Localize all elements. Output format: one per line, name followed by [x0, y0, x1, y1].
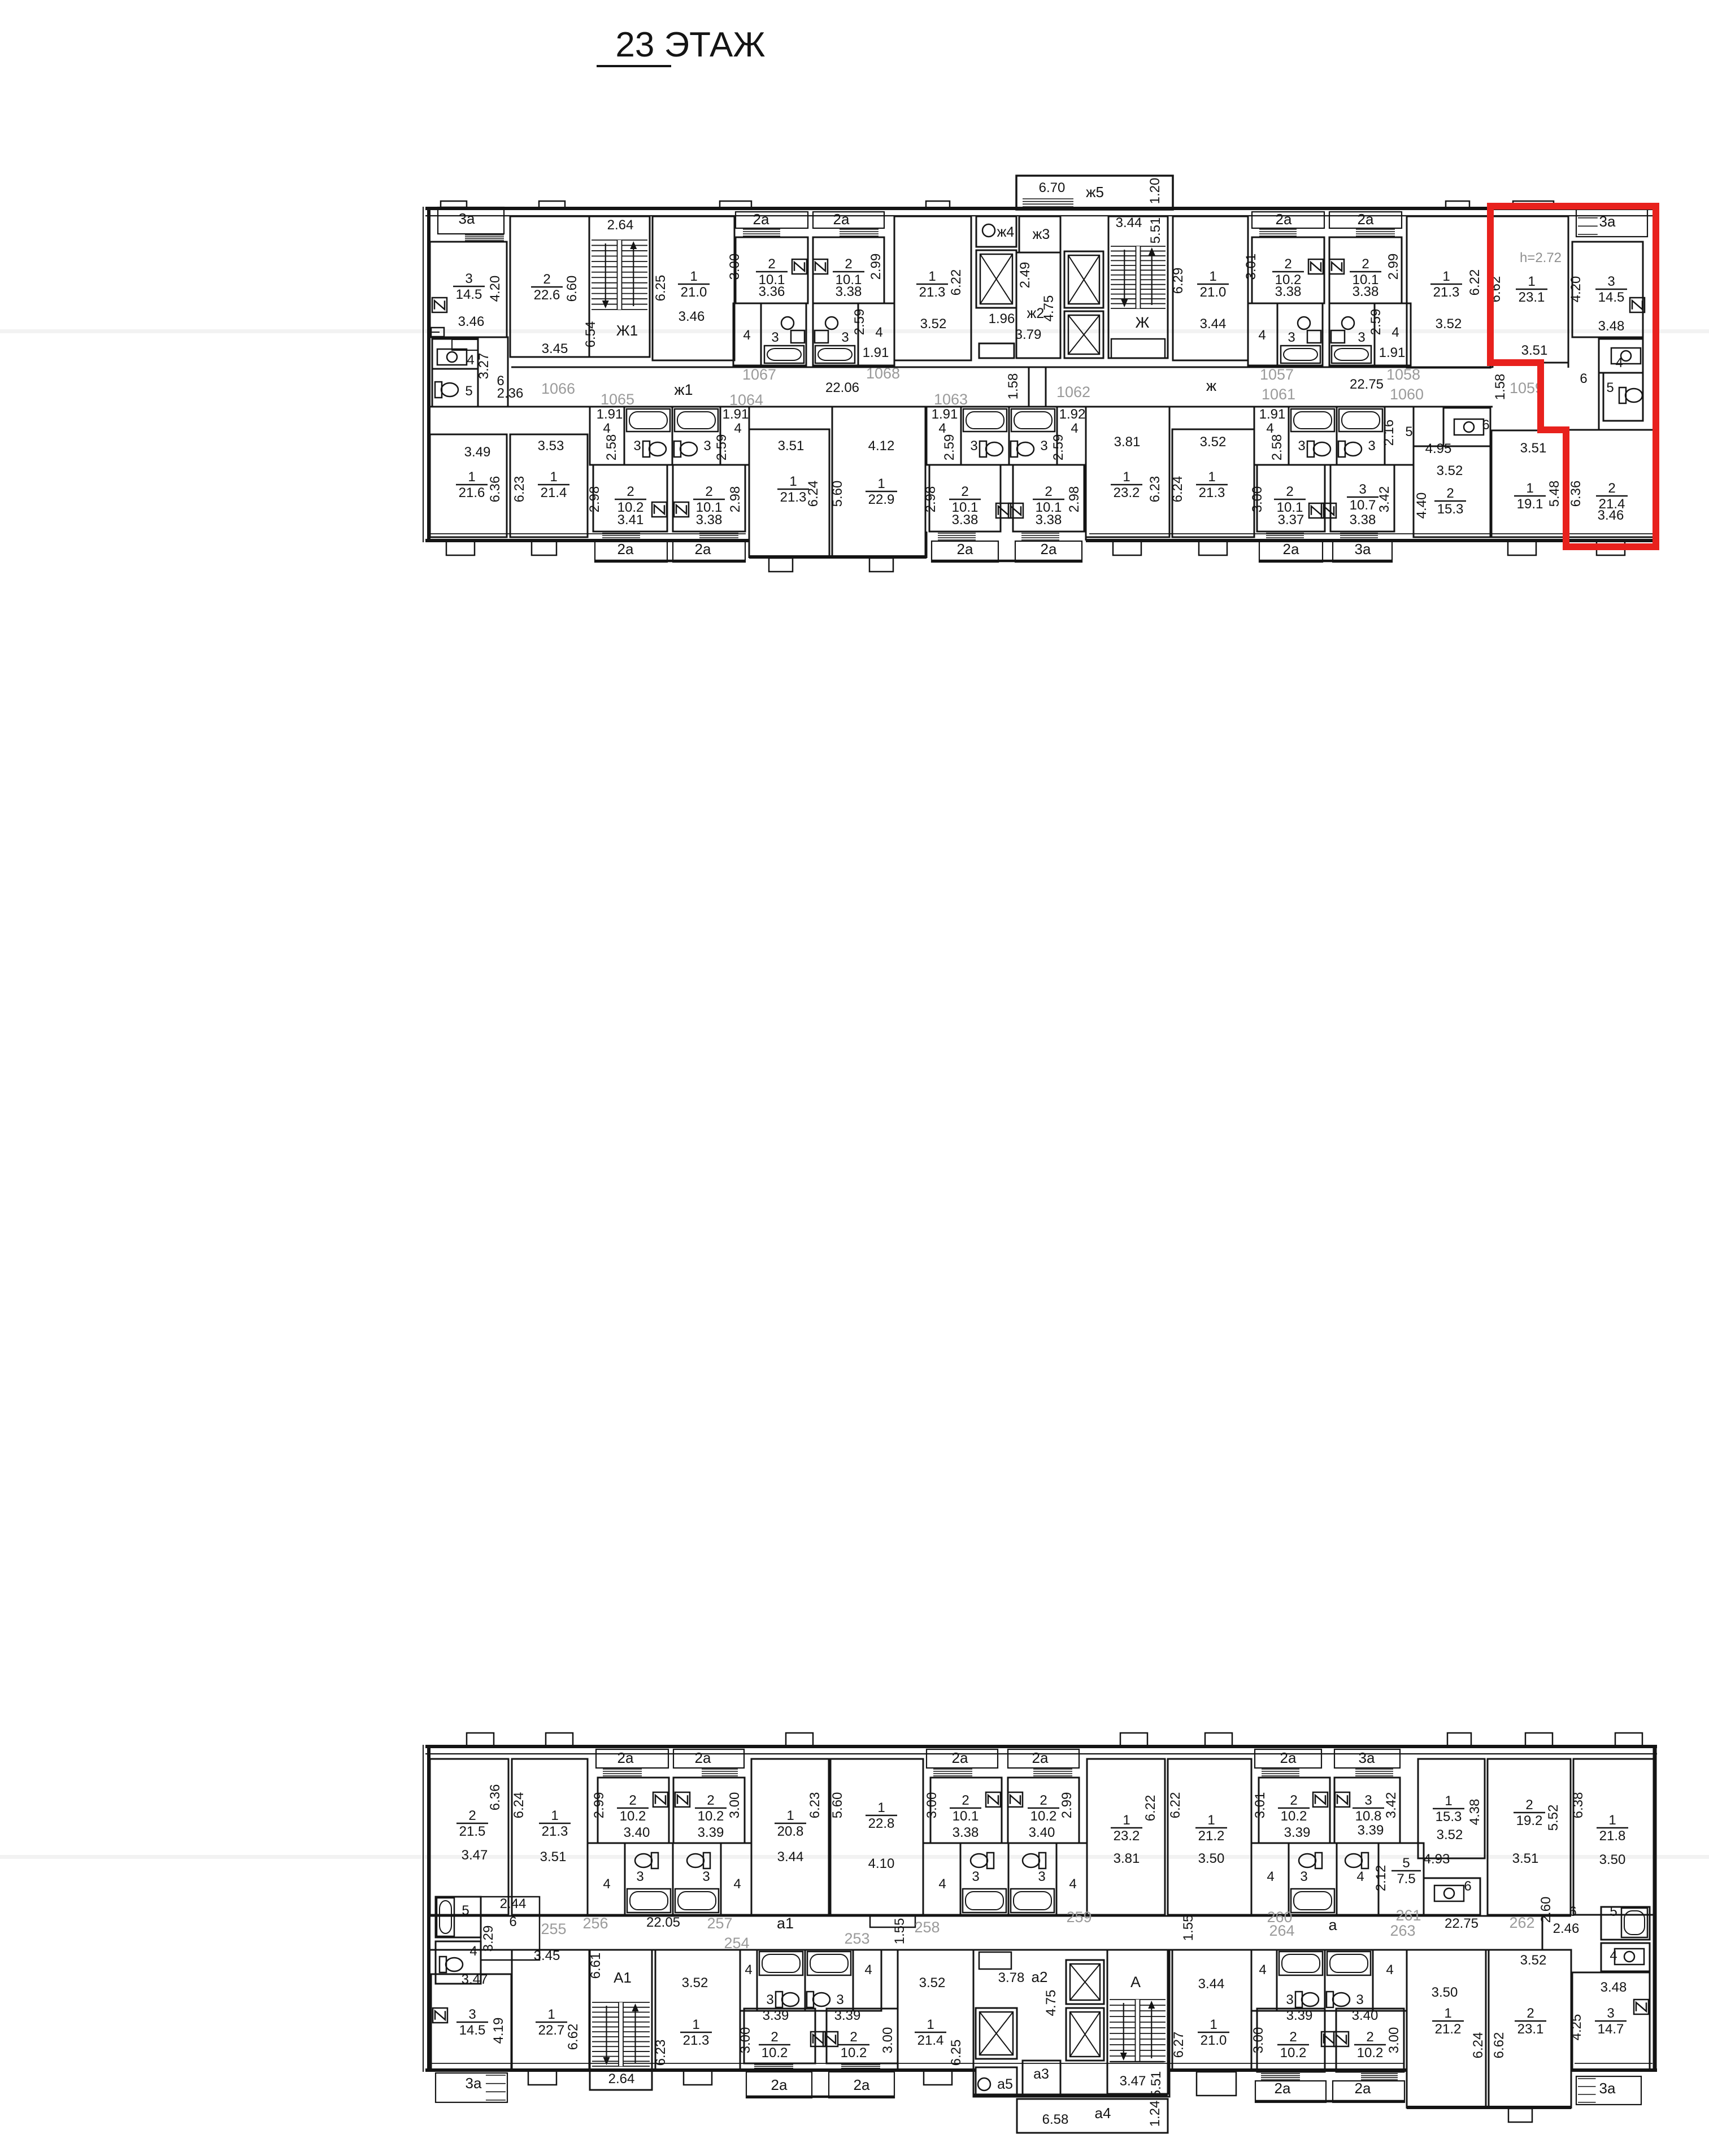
svg-text:10.2: 10.2: [1280, 2045, 1307, 2061]
svg-text:2а: 2а: [833, 211, 850, 228]
svg-text:2.59: 2.59: [1051, 434, 1066, 461]
svg-text:ж: ж: [1206, 377, 1216, 394]
svg-text:23 ЭТАЖ: 23 ЭТАЖ: [615, 25, 765, 64]
svg-text:3.00: 3.00: [1250, 486, 1265, 513]
svg-text:6.24: 6.24: [511, 1792, 527, 1819]
svg-text:6.70: 6.70: [1039, 180, 1066, 195]
svg-text:3а: 3а: [1355, 541, 1371, 557]
svg-text:3.38: 3.38: [1275, 284, 1302, 299]
svg-text:3.00: 3.00: [1251, 2027, 1266, 2054]
svg-text:1: 1: [1526, 481, 1533, 496]
svg-text:23.1: 23.1: [1519, 290, 1545, 305]
svg-text:1.91: 1.91: [1259, 407, 1286, 422]
svg-text:3.52: 3.52: [1437, 1827, 1463, 1843]
svg-text:19.1: 19.1: [1517, 496, 1543, 512]
svg-text:4: 4: [1266, 421, 1273, 436]
svg-text:2.99: 2.99: [868, 254, 884, 280]
svg-text:5.51: 5.51: [1148, 217, 1163, 244]
svg-text:1: 1: [877, 1800, 885, 1815]
svg-text:5: 5: [1405, 424, 1412, 439]
svg-text:10.2: 10.2: [841, 2045, 867, 2061]
svg-text:5: 5: [1402, 1856, 1410, 1871]
svg-text:3.50: 3.50: [1432, 1985, 1458, 2000]
svg-text:1: 1: [692, 2017, 699, 2032]
svg-text:4: 4: [467, 352, 474, 368]
svg-text:15.3: 15.3: [1437, 502, 1464, 517]
svg-text:253: 253: [844, 1930, 869, 1947]
svg-text:3: 3: [1038, 1869, 1045, 1884]
svg-text:22.75: 22.75: [1445, 1916, 1478, 1931]
svg-text:1: 1: [1209, 269, 1216, 284]
svg-text:3.50: 3.50: [1599, 1852, 1626, 1867]
svg-text:10.2: 10.2: [1357, 2045, 1384, 2061]
svg-text:6: 6: [1569, 1904, 1576, 1919]
svg-text:21.3: 21.3: [683, 2033, 710, 2048]
svg-text:6.36: 6.36: [1568, 481, 1584, 507]
svg-text:3а: 3а: [1359, 1749, 1375, 1766]
svg-text:257: 257: [707, 1915, 732, 1932]
svg-text:2: 2: [1527, 2006, 1534, 2021]
svg-text:21.4: 21.4: [541, 485, 567, 500]
svg-text:6.27: 6.27: [1171, 2032, 1186, 2058]
svg-text:2: 2: [629, 1793, 636, 1808]
svg-text:3: 3: [1288, 330, 1295, 345]
svg-text:2.64: 2.64: [608, 2071, 635, 2087]
svg-text:2а: 2а: [617, 1749, 634, 1766]
svg-text:3.48: 3.48: [1601, 1980, 1627, 1995]
svg-text:4: 4: [743, 328, 750, 343]
svg-text:2а: 2а: [617, 541, 634, 557]
svg-text:3.00: 3.00: [880, 2027, 895, 2054]
svg-text:3а: 3а: [1599, 213, 1616, 230]
svg-text:264: 264: [1269, 1922, 1294, 1939]
svg-text:1: 1: [468, 469, 475, 485]
svg-text:3.50: 3.50: [1198, 1851, 1225, 1866]
svg-text:6.22: 6.22: [1467, 269, 1482, 296]
svg-text:3.51: 3.51: [778, 438, 805, 454]
svg-text:3.42: 3.42: [1384, 1792, 1399, 1819]
svg-text:2: 2: [1045, 484, 1052, 499]
svg-text:4: 4: [1386, 1962, 1393, 1978]
svg-text:1066: 1066: [541, 380, 575, 397]
svg-text:2: 2: [1040, 1793, 1047, 1808]
svg-text:2а: 2а: [1283, 541, 1299, 557]
svg-text:1.91: 1.91: [723, 407, 749, 422]
svg-text:2: 2: [961, 484, 968, 499]
svg-text:1: 1: [1445, 1793, 1452, 1809]
svg-text:21.3: 21.3: [919, 285, 946, 300]
svg-text:21.5: 21.5: [459, 1824, 486, 1839]
svg-text:1: 1: [551, 1808, 558, 1823]
svg-text:3.00: 3.00: [727, 254, 742, 280]
svg-text:3: 3: [1358, 330, 1365, 345]
svg-text:262: 262: [1509, 1914, 1534, 1931]
svg-text:3.81: 3.81: [1114, 1851, 1140, 1866]
svg-text:3.39: 3.39: [1284, 1825, 1311, 1840]
svg-text:2: 2: [768, 256, 775, 272]
svg-text:2.98: 2.98: [728, 486, 743, 513]
svg-text:22.8: 22.8: [868, 1816, 895, 1831]
svg-text:22.7: 22.7: [538, 2023, 565, 2038]
svg-text:1.58: 1.58: [1006, 373, 1021, 400]
svg-text:2: 2: [1366, 2029, 1373, 2045]
svg-text:6.62: 6.62: [1491, 2032, 1507, 2059]
svg-text:2а: 2а: [1276, 211, 1292, 228]
svg-text:2: 2: [1284, 256, 1291, 272]
svg-text:Ж1: Ж1: [616, 322, 638, 339]
svg-text:4: 4: [938, 1876, 946, 1892]
svg-text:1057: 1057: [1260, 366, 1294, 383]
svg-text:6: 6: [1464, 1879, 1471, 1894]
svg-text:4: 4: [864, 1962, 872, 1978]
svg-text:3.52: 3.52: [1437, 463, 1463, 478]
svg-text:1: 1: [927, 2017, 934, 2032]
svg-text:2.46: 2.46: [1553, 1921, 1580, 1936]
svg-text:4: 4: [603, 421, 610, 436]
svg-text:3.01: 3.01: [1253, 1792, 1268, 1819]
svg-text:2а: 2а: [695, 1749, 711, 1766]
svg-text:1: 1: [1442, 269, 1450, 284]
svg-text:4.25: 4.25: [1569, 2014, 1584, 2041]
svg-text:4: 4: [938, 421, 946, 436]
svg-text:3.46: 3.46: [1598, 508, 1624, 523]
svg-text:а: а: [1328, 1917, 1337, 1933]
svg-text:А1: А1: [614, 1969, 632, 1986]
svg-text:3.45: 3.45: [534, 1948, 560, 1963]
svg-text:21.6: 21.6: [459, 485, 485, 500]
svg-text:4: 4: [1258, 328, 1266, 343]
svg-text:1: 1: [690, 269, 697, 284]
svg-text:2а: 2а: [952, 1749, 968, 1766]
svg-text:1.24: 1.24: [1147, 2101, 1163, 2127]
svg-text:1: 1: [1123, 469, 1130, 485]
svg-text:14.5: 14.5: [1598, 290, 1625, 305]
svg-text:3.40: 3.40: [624, 1825, 650, 1840]
svg-text:2а: 2а: [1358, 211, 1374, 228]
svg-text:3.00: 3.00: [1386, 2027, 1402, 2054]
svg-text:21.2: 21.2: [1198, 1828, 1225, 1844]
svg-text:4.75: 4.75: [1043, 1990, 1059, 2016]
svg-text:3: 3: [841, 330, 849, 345]
svg-text:3.42: 3.42: [1377, 486, 1392, 513]
svg-text:4.10: 4.10: [868, 1856, 895, 1871]
svg-text:4.38: 4.38: [1467, 1799, 1482, 1826]
svg-text:2.99: 2.99: [1386, 254, 1401, 280]
svg-text:2: 2: [1525, 1797, 1533, 1813]
svg-text:10.2: 10.2: [620, 1809, 646, 1824]
svg-text:3.00: 3.00: [924, 1792, 940, 1819]
svg-text:2.16: 2.16: [1381, 420, 1397, 446]
svg-text:3.44: 3.44: [1116, 215, 1142, 230]
svg-text:2: 2: [771, 2029, 778, 2045]
svg-text:10.2: 10.2: [762, 2045, 788, 2061]
svg-text:6.54: 6.54: [583, 321, 598, 348]
svg-text:1: 1: [1210, 2017, 1217, 2032]
svg-text:3: 3: [1300, 1869, 1307, 1884]
svg-text:3.01: 3.01: [1243, 254, 1259, 280]
svg-text:3.51: 3.51: [540, 1849, 567, 1865]
svg-text:1.20: 1.20: [1147, 178, 1163, 204]
svg-text:263: 263: [1390, 1922, 1415, 1939]
svg-text:3.44: 3.44: [777, 1849, 804, 1865]
svg-text:10.1: 10.1: [953, 1809, 979, 1824]
svg-text:3.38: 3.38: [696, 512, 723, 528]
svg-text:2.12: 2.12: [1373, 1865, 1389, 1892]
svg-text:1: 1: [789, 474, 797, 489]
svg-text:2.58: 2.58: [1269, 434, 1285, 461]
svg-text:2: 2: [1608, 481, 1615, 496]
svg-text:1065: 1065: [601, 391, 634, 408]
svg-text:2.59: 2.59: [714, 434, 729, 461]
svg-text:6.24: 6.24: [1170, 476, 1185, 503]
svg-text:259: 259: [1066, 1909, 1092, 1926]
svg-text:23.2: 23.2: [1114, 485, 1140, 500]
svg-text:3.52: 3.52: [682, 1975, 708, 1991]
svg-text:21.8: 21.8: [1599, 1828, 1626, 1844]
svg-text:а2: а2: [1032, 1968, 1048, 1985]
svg-text:4: 4: [1391, 325, 1399, 340]
svg-text:3.40: 3.40: [1029, 1825, 1055, 1840]
svg-text:3.47: 3.47: [1120, 2074, 1146, 2089]
svg-text:6: 6: [509, 1914, 516, 1929]
svg-text:5: 5: [462, 1903, 469, 1918]
svg-text:2: 2: [468, 1808, 476, 1823]
svg-text:2.99: 2.99: [1059, 1792, 1075, 1819]
svg-text:3: 3: [970, 438, 977, 454]
svg-text:21.0: 21.0: [681, 285, 707, 300]
svg-text:3а: 3а: [1599, 2080, 1616, 2097]
svg-text:2: 2: [850, 2029, 857, 2045]
svg-text:3.38: 3.38: [952, 512, 979, 528]
svg-text:1: 1: [786, 1808, 794, 1823]
svg-text:3.53: 3.53: [538, 438, 564, 454]
svg-text:6.36: 6.36: [488, 476, 503, 503]
svg-text:3.44: 3.44: [1198, 1976, 1225, 1992]
svg-text:3а: 3а: [459, 210, 475, 227]
svg-text:1.55: 1.55: [892, 1918, 907, 1945]
svg-text:2а: 2а: [1032, 1749, 1049, 1766]
svg-text:Ж: Ж: [1136, 314, 1150, 331]
svg-text:1: 1: [547, 2007, 555, 2022]
svg-text:3: 3: [972, 1869, 979, 1884]
svg-text:3: 3: [1368, 438, 1375, 454]
svg-text:258: 258: [914, 1919, 940, 1936]
svg-text:2.64: 2.64: [607, 217, 634, 233]
svg-text:4: 4: [1610, 1948, 1617, 1963]
svg-text:2.99: 2.99: [592, 1792, 607, 1819]
svg-text:5: 5: [1606, 380, 1614, 395]
svg-text:1068: 1068: [866, 365, 900, 382]
svg-text:1: 1: [877, 476, 885, 491]
svg-text:2а: 2а: [753, 211, 769, 228]
svg-text:3: 3: [633, 438, 641, 454]
svg-text:2.36: 2.36: [497, 386, 524, 401]
svg-text:6.36: 6.36: [488, 1784, 503, 1811]
svg-text:23.1: 23.1: [1517, 2022, 1544, 2037]
svg-text:4: 4: [1259, 1962, 1266, 1978]
svg-text:4: 4: [1356, 1869, 1364, 1884]
svg-text:256: 256: [582, 1915, 608, 1932]
svg-text:2а: 2а: [1041, 541, 1057, 557]
svg-text:3.36: 3.36: [759, 284, 785, 299]
svg-text:2: 2: [543, 272, 550, 287]
svg-text:6.60: 6.60: [564, 276, 580, 302]
svg-text:4.20: 4.20: [1568, 276, 1584, 303]
svg-text:а4: а4: [1095, 2105, 1111, 2122]
svg-text:3: 3: [771, 330, 779, 345]
svg-text:3.47: 3.47: [462, 1848, 488, 1863]
svg-text:3.38: 3.38: [1350, 512, 1376, 528]
svg-text:4.20: 4.20: [488, 276, 503, 302]
svg-text:4: 4: [734, 421, 741, 436]
svg-text:3.38: 3.38: [1353, 284, 1379, 299]
svg-text:1: 1: [1208, 469, 1215, 485]
svg-text:1.91: 1.91: [863, 345, 889, 360]
svg-text:3.51: 3.51: [1520, 441, 1547, 456]
svg-text:6.23: 6.23: [1147, 476, 1163, 503]
svg-text:5.52: 5.52: [1546, 1805, 1561, 1831]
svg-text:1062: 1062: [1056, 384, 1090, 400]
svg-text:3.38: 3.38: [836, 284, 862, 299]
svg-text:3: 3: [1356, 1992, 1363, 2007]
svg-text:h=2.72: h=2.72: [1520, 250, 1562, 265]
svg-text:22.06: 22.06: [825, 380, 859, 395]
svg-text:19.2: 19.2: [1516, 1813, 1543, 1828]
svg-text:1: 1: [928, 269, 936, 284]
svg-text:1060: 1060: [1390, 386, 1424, 403]
svg-text:а5: а5: [997, 2076, 1013, 2092]
svg-text:22.75: 22.75: [1350, 377, 1384, 392]
svg-text:4.40: 4.40: [1414, 493, 1429, 519]
svg-text:2.98: 2.98: [587, 486, 602, 513]
svg-text:3.46: 3.46: [458, 314, 485, 329]
svg-text:261: 261: [1395, 1907, 1421, 1924]
svg-text:а3: а3: [1033, 2066, 1049, 2082]
svg-text:ж3: ж3: [1033, 227, 1050, 242]
svg-text:2: 2: [1290, 1793, 1297, 1808]
svg-text:5.60: 5.60: [830, 1792, 845, 1819]
svg-text:5.60: 5.60: [830, 481, 845, 507]
svg-text:21.3: 21.3: [780, 490, 807, 505]
svg-text:22.6: 22.6: [534, 288, 560, 303]
svg-text:6.62: 6.62: [566, 2024, 581, 2050]
svg-text:10.2: 10.2: [698, 1809, 724, 1824]
svg-text:14.5: 14.5: [459, 2023, 486, 2038]
svg-text:7.5: 7.5: [1397, 1871, 1415, 1887]
svg-text:3: 3: [766, 1992, 773, 2007]
svg-text:4.75: 4.75: [1041, 295, 1056, 322]
svg-text:3: 3: [1364, 1793, 1372, 1808]
svg-text:2: 2: [962, 1793, 969, 1808]
svg-text:21.0: 21.0: [1201, 2033, 1227, 2048]
svg-text:3.29: 3.29: [481, 1926, 496, 1952]
svg-text:2а: 2а: [1280, 1749, 1297, 1766]
svg-text:2а: 2а: [695, 541, 711, 557]
svg-text:5: 5: [465, 384, 472, 399]
svg-text:2.59: 2.59: [1368, 309, 1384, 336]
svg-text:3: 3: [636, 1869, 643, 1884]
svg-text:1058: 1058: [1386, 366, 1420, 383]
svg-text:6.24: 6.24: [1471, 2032, 1486, 2059]
svg-text:4: 4: [1267, 1869, 1274, 1884]
svg-text:4.19: 4.19: [491, 2018, 506, 2044]
svg-text:3: 3: [703, 438, 711, 454]
svg-text:6.38: 6.38: [1571, 1792, 1586, 1819]
svg-text:ж5: ж5: [1086, 184, 1104, 201]
svg-text:22.05: 22.05: [646, 1915, 680, 1930]
svg-text:6.61: 6.61: [588, 1953, 603, 1979]
svg-text:3.45: 3.45: [542, 341, 568, 356]
svg-text:6.22: 6.22: [949, 269, 964, 296]
svg-text:14.5: 14.5: [456, 287, 482, 302]
svg-text:4: 4: [469, 1944, 477, 1959]
svg-text:2: 2: [1362, 256, 1369, 272]
svg-text:3: 3: [1607, 274, 1615, 289]
svg-text:21.3: 21.3: [1199, 485, 1225, 500]
svg-text:6.25: 6.25: [949, 2040, 964, 2066]
svg-text:20.8: 20.8: [777, 1824, 804, 1839]
svg-text:1: 1: [1444, 2006, 1451, 2021]
svg-text:3.79: 3.79: [1015, 327, 1042, 342]
svg-text:3: 3: [1607, 2006, 1614, 2021]
svg-text:3.41: 3.41: [617, 512, 644, 528]
svg-text:ж1: ж1: [674, 381, 693, 398]
svg-text:2а: 2а: [771, 2076, 788, 2093]
svg-text:4.12: 4.12: [868, 438, 895, 454]
svg-text:3.44: 3.44: [1200, 316, 1227, 332]
svg-text:2.44: 2.44: [500, 1896, 527, 1911]
svg-text:1.92: 1.92: [1059, 407, 1086, 422]
svg-text:6: 6: [1580, 371, 1587, 386]
svg-text:1.55: 1.55: [1181, 1915, 1196, 1941]
svg-text:2: 2: [1289, 2029, 1297, 2045]
svg-text:3: 3: [468, 2007, 476, 2022]
svg-text:3.52: 3.52: [920, 316, 947, 332]
svg-text:5.51: 5.51: [1149, 2071, 1164, 2098]
svg-text:А: А: [1130, 1974, 1141, 1991]
svg-text:3.48: 3.48: [1598, 319, 1625, 334]
svg-text:1061: 1061: [1262, 386, 1295, 403]
svg-text:4: 4: [1071, 421, 1078, 436]
svg-text:3.39: 3.39: [698, 1825, 724, 1840]
svg-text:3.00: 3.00: [738, 2027, 753, 2054]
svg-text:1063: 1063: [934, 391, 968, 408]
svg-text:6.23: 6.23: [653, 2040, 668, 2066]
svg-text:ж4: ж4: [997, 224, 1015, 240]
svg-text:3.81: 3.81: [1114, 434, 1141, 450]
svg-text:3: 3: [702, 1869, 710, 1884]
svg-text:6.58: 6.58: [1042, 2112, 1069, 2127]
svg-text:21.3: 21.3: [1433, 285, 1460, 300]
svg-text:2а: 2а: [1355, 2080, 1371, 2097]
svg-text:5: 5: [1610, 1904, 1617, 1919]
svg-text:2.98: 2.98: [1067, 486, 1082, 513]
svg-text:21.0: 21.0: [1200, 285, 1227, 300]
svg-text:4: 4: [733, 1876, 741, 1892]
svg-text:1.91: 1.91: [1379, 345, 1406, 360]
svg-text:4.95: 4.95: [1425, 441, 1452, 456]
svg-text:2.59: 2.59: [942, 434, 957, 461]
svg-text:2а: 2а: [957, 541, 973, 557]
svg-text:3а: 3а: [466, 2075, 482, 2092]
svg-text:10.2: 10.2: [1030, 1809, 1057, 1824]
svg-text:3.46: 3.46: [679, 309, 705, 324]
svg-text:3.38: 3.38: [1036, 512, 1062, 528]
svg-text:3.52: 3.52: [1520, 1953, 1547, 1968]
svg-text:6.22: 6.22: [1143, 1795, 1158, 1822]
svg-text:1067: 1067: [742, 366, 776, 383]
svg-text:6.22: 6.22: [1168, 1792, 1183, 1819]
